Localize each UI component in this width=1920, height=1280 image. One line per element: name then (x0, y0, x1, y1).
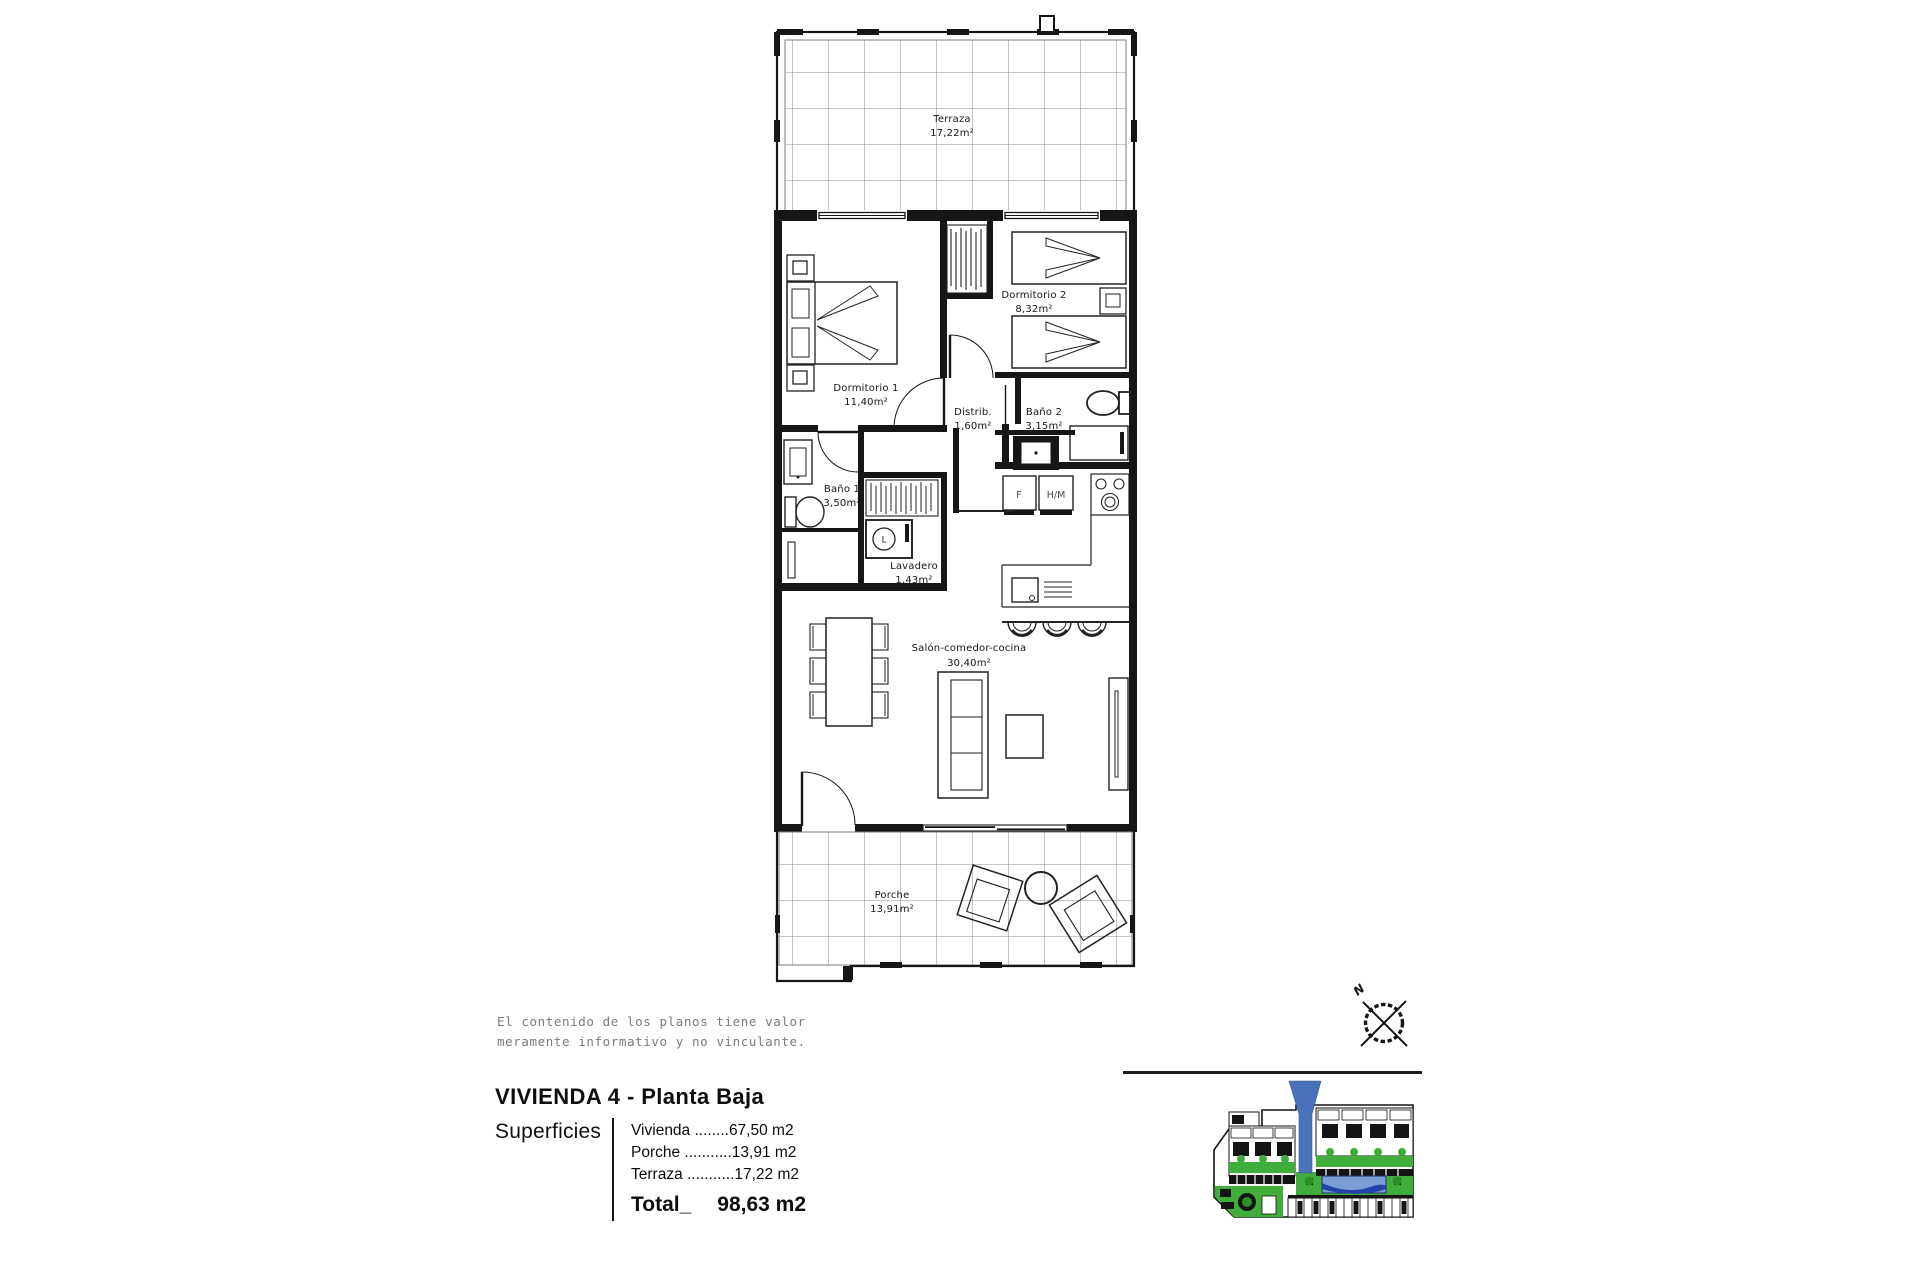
wardrobe (947, 225, 987, 293)
compass-axis-nw (1363, 1002, 1407, 1046)
room-area-bano2: 3,15m² (1025, 421, 1062, 432)
surface-value: 67,50 m2 (729, 1122, 794, 1139)
sofa (938, 672, 988, 798)
oven-micro-label: H/M (1047, 490, 1066, 501)
surface-row-terraza: Terraza ...........17,22 m2 (631, 1164, 806, 1186)
surface-label: Terraza (631, 1166, 687, 1183)
room-label-dormitorio2: Dormitorio 2 (1001, 290, 1066, 301)
roof-vent (1040, 16, 1054, 32)
room-area-lavadero: 1,43m² (895, 575, 932, 586)
bath1-fixtures (784, 440, 824, 578)
room-area-salon: 30,40m² (947, 658, 991, 669)
room-label-distrib: Distrib. (954, 407, 992, 418)
coffee-table (1006, 715, 1043, 758)
page: Terraza 17,22m² Dormitorio 1 11,40m² Dor… (0, 0, 1920, 1280)
site-plan (1205, 1076, 1420, 1224)
porch-area (775, 832, 1135, 981)
bed-dorm1 (787, 255, 897, 391)
surface-dots: ........ (694, 1122, 728, 1139)
room-label-dormitorio1: Dormitorio 1 (833, 383, 898, 394)
compass: N (1336, 974, 1436, 1074)
room-label-lavadero: Lavadero (890, 561, 938, 572)
surface-row-vivienda: Vivienda ........67,50 m2 (631, 1120, 806, 1142)
parking-row (1288, 1195, 1413, 1217)
surface-label: Vivienda (631, 1122, 694, 1139)
surface-row-porche: Porche ...........13,91 m2 (631, 1142, 806, 1164)
total-label: Total_ (631, 1193, 691, 1216)
room-area-terraza: 17,22m² (930, 128, 974, 139)
divider-line (1123, 1071, 1422, 1074)
living-slider-window (923, 825, 1067, 831)
total-value: 98,63 m2 (717, 1193, 806, 1216)
surfaces-label: Superficies (495, 1118, 612, 1221)
title-block: VIVIENDA 4 - Planta Baja Superficies Viv… (495, 1084, 855, 1221)
north-label: N (1351, 981, 1368, 998)
tv-unit (1109, 678, 1128, 790)
room-label-salon: Salón-comedor-cocina (912, 642, 1027, 654)
surface-dots: ........... (684, 1144, 731, 1161)
fridge-label: F (1016, 490, 1021, 501)
washer-label: L (882, 536, 887, 546)
room-area-dormitorio2: 8,32m² (1015, 304, 1052, 315)
room-label-terraza: Terraza (932, 114, 971, 125)
room-area-distrib: 1,60m² (954, 421, 991, 432)
surface-dots: ........... (687, 1166, 734, 1183)
room-label-bano1: Baño 1 (824, 484, 860, 495)
room-area-bano1: 3,50m² (823, 498, 860, 509)
laundry (866, 480, 938, 558)
room-area-dormitorio1: 11,40m² (844, 397, 888, 408)
room-area-porche: 13,91m² (870, 904, 914, 915)
dining-set (810, 618, 888, 726)
exterior-walls (774, 210, 1137, 832)
room-label-porche: Porche (875, 890, 910, 901)
room-label-bano2: Baño 2 (1026, 407, 1062, 418)
disclaimer: El contenido de los planos tiene valor m… (497, 1012, 806, 1052)
surface-value: 13,91 m2 (732, 1144, 797, 1161)
surface-total-row: Total_98,63 m2 (631, 1193, 806, 1217)
floor-plan: Terraza 17,22m² Dormitorio 1 11,40m² Dor… (770, 12, 1142, 988)
surface-label: Porche (631, 1144, 684, 1161)
disclaimer-line2: meramente informativo y no vinculante. (497, 1032, 806, 1052)
disclaimer-line1: El contenido de los planos tiene valor (497, 1012, 806, 1032)
surface-value: 17,22 m2 (734, 1166, 799, 1183)
surfaces-table: Vivienda ........67,50 m2 Porche .......… (612, 1118, 806, 1221)
plan-title: VIVIENDA 4 - Planta Baja (495, 1084, 855, 1110)
